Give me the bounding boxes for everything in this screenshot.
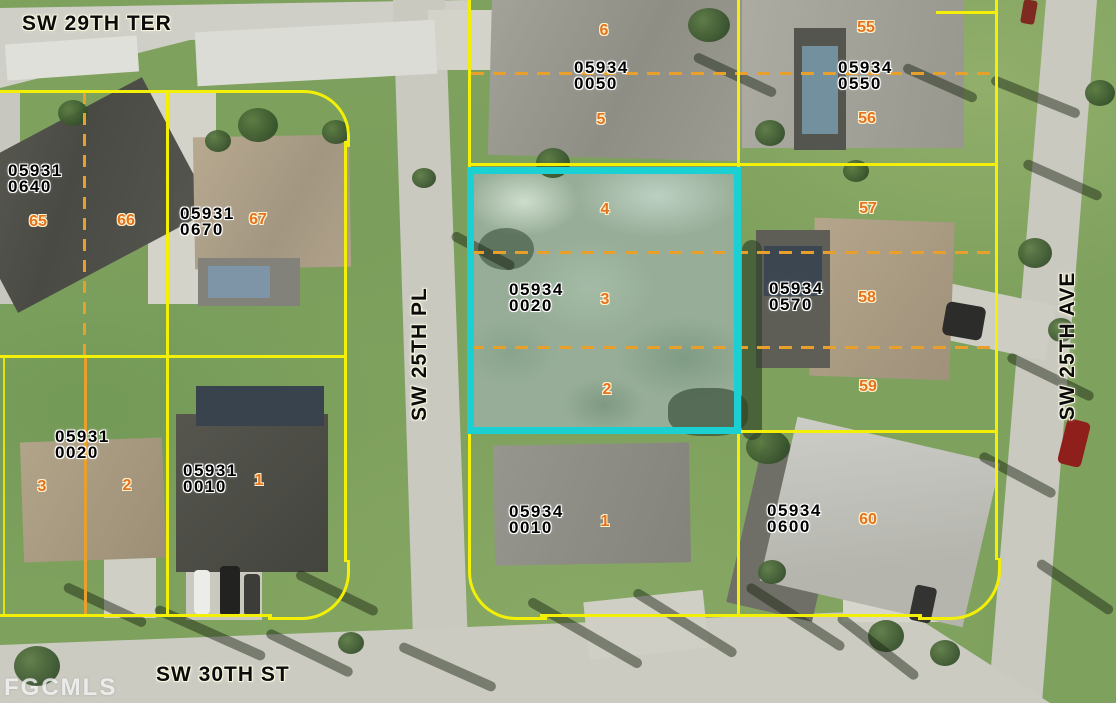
lot-divider-line (471, 72, 996, 75)
lot-number: 5 (597, 111, 606, 129)
parcel-id-label: 059340550 (838, 60, 893, 92)
lot-number: 66 (117, 212, 135, 230)
lot-number: 6 (600, 22, 609, 40)
parcel-boundary (270, 90, 350, 147)
parcel-boundary (936, 11, 996, 14)
driveway (428, 10, 498, 70)
street-label: SW 29TH TER (22, 12, 172, 36)
mls-watermark: FGCMLS (4, 674, 117, 702)
car (941, 301, 986, 341)
parcel-id-label: 059310010 (183, 463, 238, 495)
tree (688, 8, 730, 42)
parcel-boundary (468, 558, 547, 620)
lot-number: 56 (858, 110, 876, 128)
parcel-id-label: 059340050 (574, 60, 629, 92)
pool (208, 266, 270, 298)
parcel-id-label: 059340020 (509, 282, 564, 314)
parcel-boundary (740, 430, 998, 433)
parcel-boundary (344, 358, 347, 562)
parcel-boundary (0, 614, 272, 617)
parcel-boundary (468, 163, 740, 166)
parcel-boundary (344, 141, 347, 358)
parcel-id-label: 059310640 (8, 163, 63, 195)
car (194, 570, 210, 614)
parked-trucks (5, 35, 139, 80)
tree (930, 640, 960, 666)
parcel-boundary (268, 560, 350, 620)
pool (196, 386, 324, 426)
parcel-id-label: 059310670 (180, 206, 235, 238)
car (220, 566, 240, 616)
parcel-id-label: 059340600 (767, 503, 822, 535)
parcel-boundary (0, 355, 347, 358)
parcel-id-label: 059310020 (55, 429, 110, 461)
lot-number: 1 (601, 513, 610, 531)
parcel-boundary (737, 163, 998, 166)
house-roof (193, 135, 351, 270)
tree (755, 120, 785, 146)
parcel-id-label: 059340570 (769, 281, 824, 313)
lot-number: 59 (859, 378, 877, 396)
lot-number: 3 (601, 291, 610, 309)
lot-number: 60 (859, 511, 877, 529)
car (244, 574, 260, 616)
parcel-boundary (3, 357, 5, 615)
parcel-boundary (995, 0, 998, 560)
house-roof (809, 218, 954, 381)
parcel-boundary (540, 614, 740, 617)
street-label: SW 25TH AVE (1056, 272, 1080, 421)
parcel-boundary (0, 90, 272, 93)
lot-divider-line (83, 92, 86, 355)
lot-number: 4 (601, 201, 610, 219)
parcel-boundary (166, 92, 169, 616)
pool (802, 46, 838, 134)
car (1020, 0, 1038, 25)
lot-divider-line (84, 358, 87, 614)
tree (205, 130, 231, 152)
parcel-boundary (918, 558, 1001, 620)
tree (758, 560, 786, 584)
lot-number: 1 (255, 472, 264, 490)
tree (412, 168, 436, 188)
lot-number: 58 (858, 289, 876, 307)
street-label: SW 30TH ST (156, 663, 290, 687)
parcel-id-label: 059340010 (509, 504, 564, 536)
lot-number: 3 (38, 478, 47, 496)
lot-number: 2 (123, 477, 132, 495)
tree (338, 632, 364, 654)
lot-number: 65 (29, 213, 47, 231)
lot-number: 67 (249, 211, 267, 229)
lot-number: 2 (603, 381, 612, 399)
aerial-parcel-map: SW 29TH TERSW 25TH PLSW 25TH AVESW 30TH … (0, 0, 1116, 703)
tree (1018, 238, 1052, 268)
parcel-boundary (740, 614, 922, 617)
lot-number: 57 (859, 200, 877, 218)
street-label: SW 25TH PL (408, 287, 432, 421)
tree (1085, 80, 1115, 106)
lot-number: 55 (857, 19, 875, 37)
hedge (742, 240, 762, 440)
